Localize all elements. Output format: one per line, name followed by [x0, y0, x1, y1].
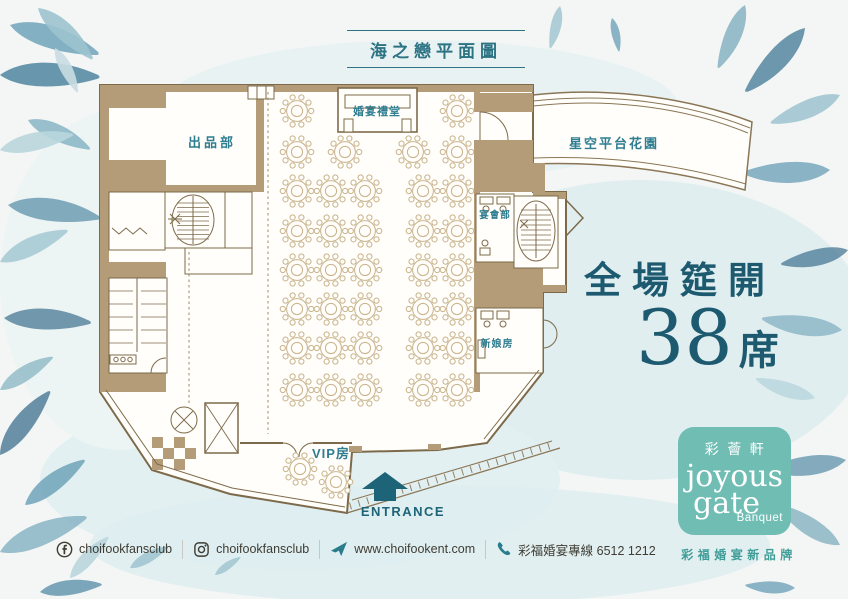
- banquet-office-room: [476, 194, 514, 262]
- seats-unit: 席: [739, 318, 779, 376]
- phone-link[interactable]: 彩福婚宴專線 6512 1212: [496, 540, 656, 559]
- room-label-terrace: 星空平台花園: [569, 136, 659, 151]
- seats-callout: 全場筵開 38 席: [584, 250, 779, 376]
- page-title-text: 海之戀平面圖: [370, 42, 502, 61]
- website-url: www.choifookent.com: [354, 542, 475, 556]
- phone-icon: [496, 541, 512, 557]
- facebook-handle: choifookfansclub: [79, 542, 172, 556]
- room-label-bridal-room: 新娘房: [481, 337, 514, 350]
- page-title: 海之戀平面圖: [347, 30, 525, 68]
- brand-logo: 彩薈軒 joyous gate Banquet: [678, 427, 791, 535]
- restrooms: [109, 278, 167, 373]
- room-label-kitchen: 出品部: [188, 135, 236, 150]
- facebook-link[interactable]: choifookfansclub: [56, 541, 172, 558]
- room-label-banquet-office: 宴會部: [479, 209, 511, 221]
- footer-divider: [485, 540, 486, 559]
- brand-name-banquet: Banquet: [737, 512, 783, 524]
- footer-divider: [319, 540, 320, 559]
- stairwell-right: [514, 196, 583, 268]
- instagram-link[interactable]: choifookfansclub: [193, 541, 309, 558]
- room-label-ceremony-hall: 婚宴禮堂: [353, 104, 401, 118]
- cloak-room: [109, 192, 165, 250]
- website-link[interactable]: www.choifookent.com: [330, 541, 475, 557]
- seats-number: 38: [636, 306, 733, 371]
- instagram-handle: choifookfansclub: [216, 542, 309, 556]
- brand-chinese-name: 彩薈軒: [678, 439, 791, 459]
- footer-bar: choifookfansclub choifookfansclub www.ch…: [56, 538, 656, 560]
- footer-divider: [182, 540, 183, 559]
- instagram-icon: [193, 541, 210, 558]
- room-label-entrance: ENTRANCE: [361, 504, 445, 519]
- brand-tagline: 彩福婚宴新品牌: [674, 546, 800, 563]
- top-wall-fixture: [248, 86, 274, 99]
- facebook-icon: [56, 541, 73, 558]
- paper-plane-icon: [330, 541, 348, 557]
- room-label-vip-room: VIP房: [312, 446, 350, 461]
- phone-number: 彩福婚宴專線 6512 1212: [518, 540, 656, 559]
